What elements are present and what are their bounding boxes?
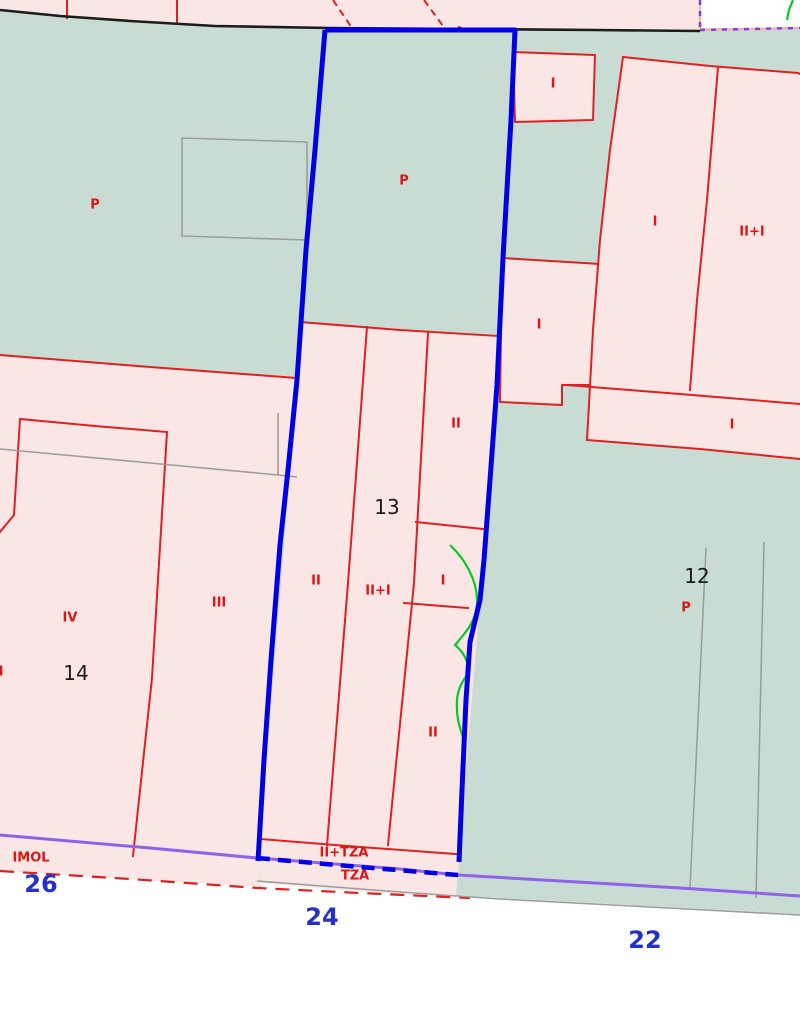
map-label-height-p: P: [681, 602, 691, 615]
map-label-height-i: I: [537, 319, 542, 332]
map-label-parcel-12: 12: [684, 566, 709, 586]
map-label-height-i: I: [653, 216, 658, 229]
map-label-street-26: 26: [24, 872, 57, 896]
map-label-street-24: 24: [305, 905, 338, 929]
map-label-height-p: P: [90, 199, 100, 212]
map-label-height-iii: III: [212, 597, 227, 610]
building-block-12[interactable]: [587, 57, 800, 459]
cadastral-map-canvas: [0, 0, 800, 1025]
map-label-height-ii: II: [311, 575, 321, 588]
map-label-height-i: I: [441, 575, 446, 588]
map-label-height-i: I: [730, 419, 735, 432]
map-label-height-p: P: [399, 175, 409, 188]
map-label-height-ii: II: [428, 727, 438, 740]
map-label-height-i: I: [551, 78, 556, 91]
map-label-height-tza: TZA: [341, 870, 369, 883]
map-label-parcel-13: 13: [374, 497, 399, 517]
map-label-street-22: 22: [628, 928, 661, 952]
green-overlay-line: [787, 0, 793, 20]
building-block-14[interactable]: [0, 355, 297, 887]
map-label-height-imol: IMOL: [12, 852, 49, 865]
map-label-height-ii-i: II+I: [365, 585, 390, 598]
map-label-height-i: I: [0, 666, 3, 679]
map-label-height-ii-i: II+I: [739, 226, 764, 239]
map-viewport[interactable]: PPIIII+IIIII1312PIIII+IIIVIIII14IIIMOLII…: [0, 0, 800, 1025]
map-label-height-ii: II: [451, 418, 461, 431]
map-label-height-iv: IV: [63, 612, 78, 625]
map-label-height-ii-tza: II+TZA: [320, 847, 369, 860]
map-label-parcel-14: 14: [63, 663, 88, 683]
annex-parcel-i-mid[interactable]: [500, 258, 600, 405]
